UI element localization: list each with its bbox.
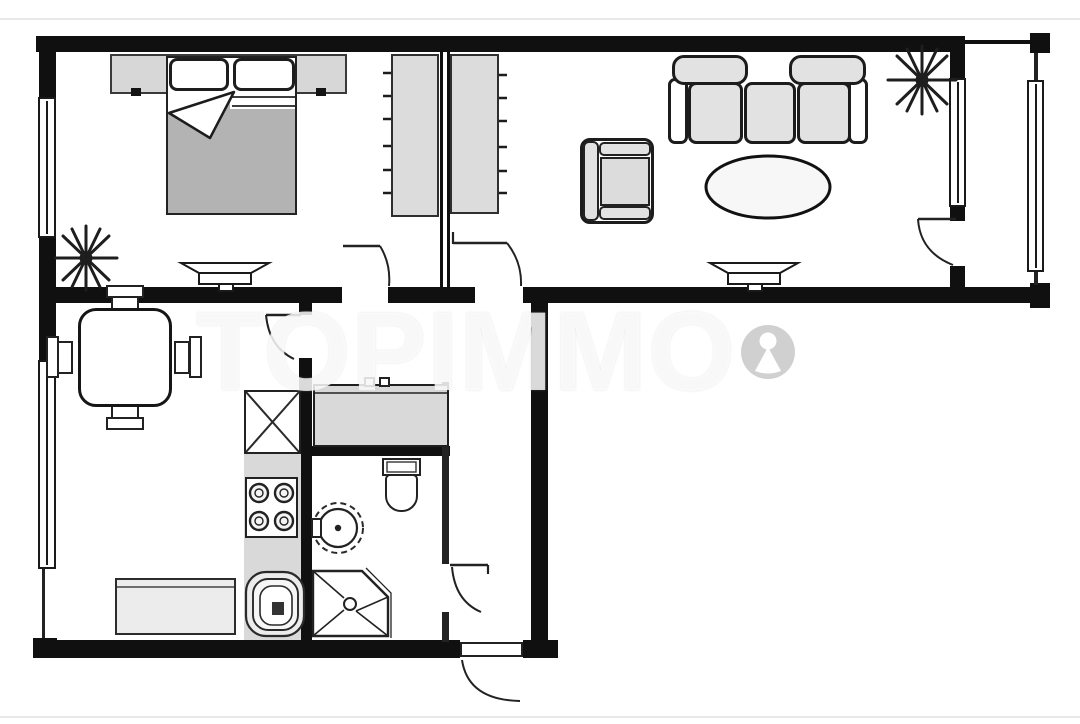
wall-bedroom-living-divider: [440, 52, 450, 287]
hall-wardrobe-right: [450, 54, 499, 214]
balcony-window: [1027, 80, 1044, 272]
wardrobe-ticks-left: [383, 73, 391, 193]
wall-living-right-c: [950, 266, 965, 303]
wall-balcony-conn-top: [1034, 53, 1038, 80]
bedroom-plant: [55, 226, 117, 290]
round-washbasin: [312, 503, 363, 553]
dining-chair-right-seat: [174, 341, 190, 374]
dining-chair-right-back: [189, 336, 202, 378]
wall-left-upper: [39, 36, 56, 99]
wardrobe-foot-left: [131, 88, 141, 96]
wall-corner-top-right: [1030, 33, 1050, 53]
bed-pillow-left: [169, 58, 229, 91]
sideboard-bench: [115, 578, 236, 635]
bed-pillow-right: [233, 58, 295, 91]
wall-hallway-right: [531, 295, 548, 658]
wardrobe-ticks-right: [499, 75, 507, 193]
bathroom-door: [450, 565, 488, 612]
armchair-arm-top: [599, 142, 651, 156]
bed-blanket: [168, 92, 295, 213]
armchair-seat: [600, 157, 650, 206]
wall-bathroom-right-stub: [442, 612, 449, 642]
scan-line-bottom: [0, 716, 1080, 718]
bedroom-door: [343, 246, 389, 286]
kitchen-stove: [245, 477, 298, 538]
sofa-armrest-right: [848, 78, 868, 144]
sofa-back-cushion-right: [789, 55, 866, 85]
wall-balcony-conn-bottom: [1034, 272, 1038, 285]
kitchen-tall-cabinet: [244, 390, 301, 454]
kitchen-window: [38, 360, 56, 569]
kitchen-door: [266, 315, 301, 359]
entrance-door: [462, 660, 520, 701]
bed-sheet-band: [230, 92, 295, 109]
scan-line-top: [0, 18, 1080, 20]
sofa-back-cushion-left: [672, 55, 748, 85]
vanity-faucet-right: [379, 377, 390, 387]
wall-living-right-a: [950, 52, 965, 78]
armchair-arm-bottom: [599, 206, 651, 220]
sofa-seat-3: [797, 82, 851, 144]
wall-top: [36, 36, 965, 52]
toilet-bowl: [385, 474, 418, 512]
dining-chair-left-seat: [57, 341, 73, 374]
wall-left-thin: [42, 569, 45, 642]
armchair-back: [583, 141, 599, 221]
floor-plan: TOPIMMO: [0, 0, 1080, 724]
wardrobe-foot-right: [316, 88, 326, 96]
oval-rug: [706, 156, 830, 218]
entrance-door-leaf: [460, 642, 523, 657]
wall-balcony-top: [963, 40, 1038, 44]
hall-wardrobe-left: [391, 54, 439, 217]
watermark-logo-icon: [740, 324, 796, 380]
sofa-armrest-left: [668, 78, 688, 144]
dining-table: [78, 308, 172, 407]
bedroom-window: [38, 97, 56, 238]
wall-bathroom-divider: [312, 446, 450, 456]
wall-corridor-mid: [388, 287, 475, 303]
vanity-console: [313, 384, 449, 447]
living-room-plant: [888, 46, 956, 114]
living-room-door: [453, 232, 521, 286]
wall-living-right-b: [950, 207, 965, 221]
sofa-seat-2: [744, 82, 796, 144]
wall-bottom-left: [33, 640, 460, 658]
sofa-seat-1: [688, 82, 743, 144]
living-room-window: [949, 78, 966, 207]
wall-kitchen-stub: [299, 287, 312, 315]
vanity-faucet-left: [364, 377, 375, 387]
dining-chair-bottom-back: [106, 417, 144, 430]
shower-tray: [313, 568, 391, 638]
balcony-door: [918, 219, 956, 265]
